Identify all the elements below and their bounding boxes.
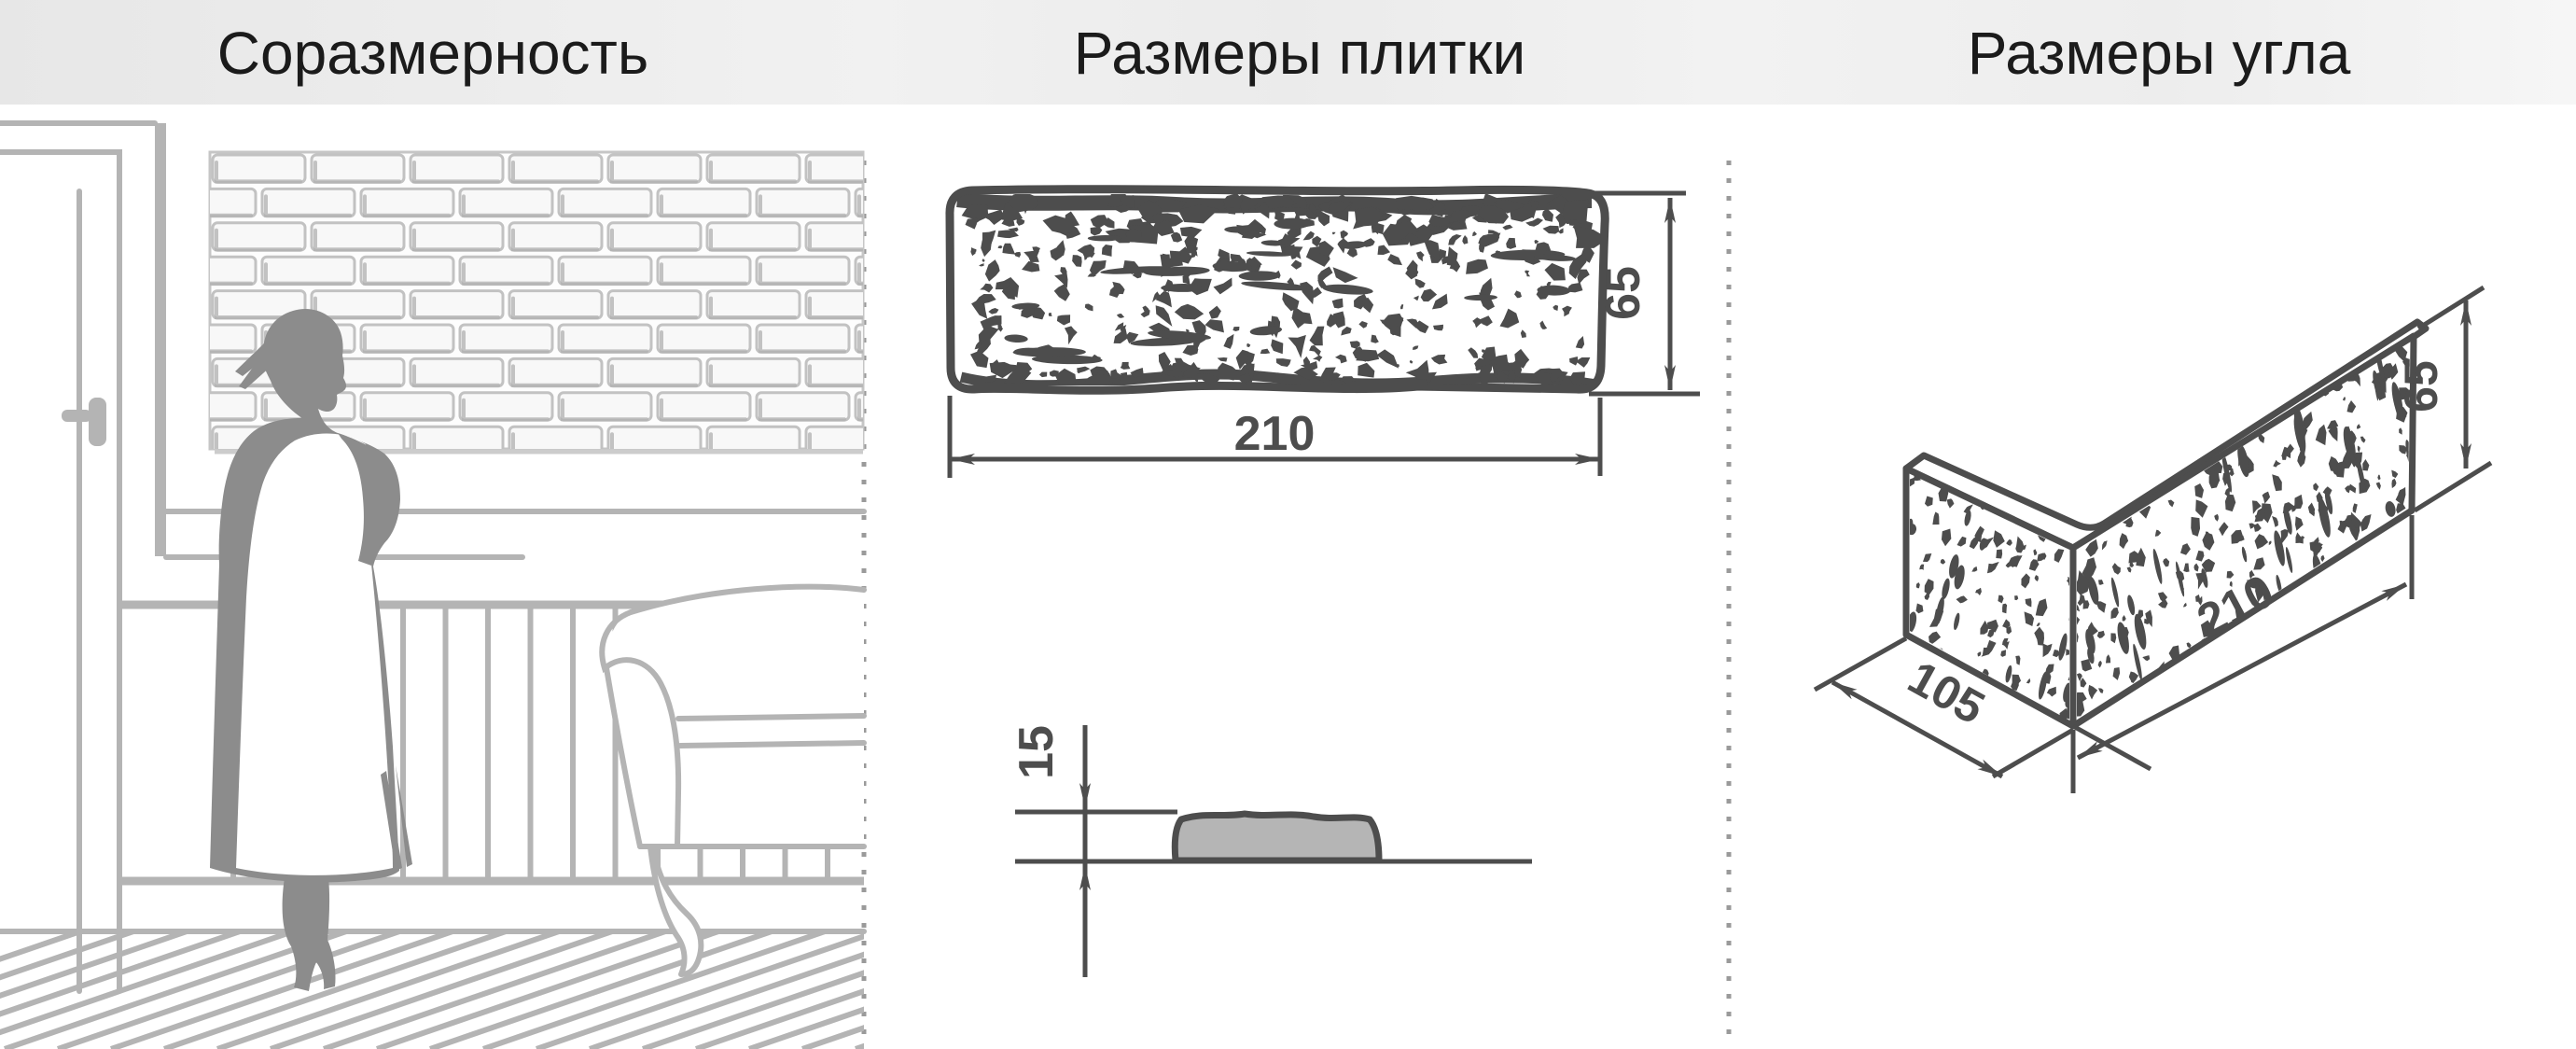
section-title-corner-size: Размеры угла	[1968, 20, 2351, 87]
door-handle	[89, 398, 106, 446]
dimensions-diagram: Соразмерность Размеры плитки Размеры угл…	[0, 0, 2576, 1049]
door-line-art	[0, 123, 166, 991]
tile-height-label: 65	[1596, 266, 1650, 320]
tile-thickness-label: 15	[1010, 725, 1064, 779]
tile-side-view: 15	[1010, 725, 1532, 977]
corner-view: 65 210 105	[1815, 287, 2491, 793]
sofa-line-art	[602, 587, 864, 974]
product-dimensions-page: Соразмерность Размеры плитки Размеры угл…	[0, 0, 2576, 1049]
section-title-scale: Соразмерность	[217, 20, 648, 87]
silhouette-feet	[283, 877, 336, 991]
header: Соразмерность Размеры плитки Размеры угл…	[0, 0, 2576, 105]
tile-profile	[1175, 814, 1379, 860]
tile-front-view: 210 65	[950, 189, 1700, 478]
brick-wall-panel	[163, 152, 948, 455]
tile-width-dimension: 210	[950, 396, 1600, 478]
floor-line-art	[0, 931, 1197, 1049]
section-title-tile-size: Размеры плитки	[1074, 20, 1526, 87]
corner-height-label: 65	[2395, 360, 2447, 413]
tile-width-label: 210	[1234, 407, 1316, 461]
